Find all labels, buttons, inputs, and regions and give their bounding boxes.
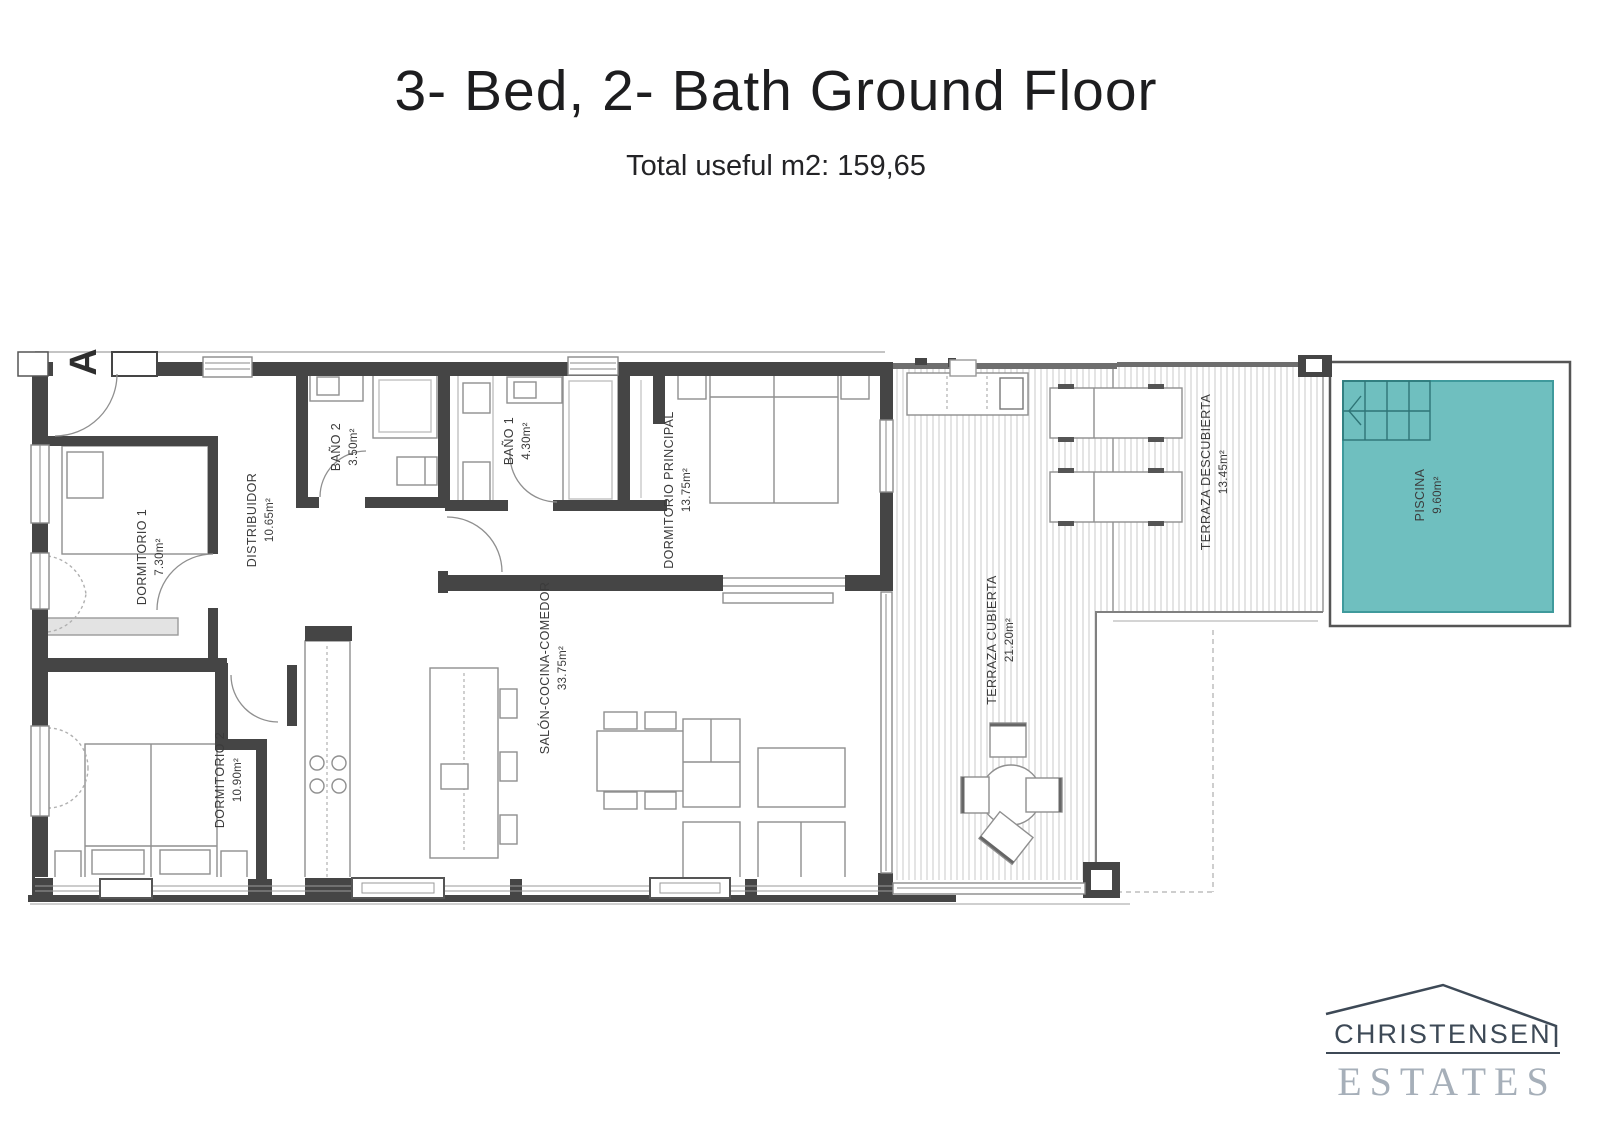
- room-label-distribuidor: DISTRIBUIDOR 10.65m²: [245, 473, 276, 567]
- svg-text:10.90m²: 10.90m²: [232, 758, 244, 802]
- svg-text:10.65m²: 10.65m²: [264, 498, 276, 542]
- logo-estates: ESTATES: [1337, 1059, 1556, 1104]
- svg-text:33.75m²: 33.75m²: [557, 646, 569, 690]
- room-label-salon: SALÓN-COCINA-COMEDOR 33.75m²: [537, 582, 569, 755]
- room-label-dormitorio-principal: DORMITORIO PRINCIPAL 13.75m²: [662, 411, 693, 569]
- room-label-bano-2: BAÑO 2 3.50m²: [329, 423, 360, 471]
- pool: [1330, 362, 1570, 626]
- svg-text:DISTRIBUIDOR: DISTRIBUIDOR: [245, 473, 259, 567]
- page: 3- Bed, 2- Bath Ground Floor Total usefu…: [0, 0, 1600, 1131]
- svg-text:TERRAZA DESCUBIERTA: TERRAZA DESCUBIERTA: [1199, 394, 1213, 551]
- sofa-set: [683, 719, 845, 879]
- svg-text:13.45m²: 13.45m²: [1218, 450, 1230, 494]
- kitchen-island: [430, 668, 517, 858]
- bano1-fixtures: [458, 375, 618, 505]
- dormitorio2-closet-doors: [48, 728, 88, 808]
- svg-text:4.30m²: 4.30m²: [521, 422, 533, 460]
- svg-text:BAÑO 1: BAÑO 1: [502, 417, 516, 465]
- svg-text:3.50m²: 3.50m²: [348, 428, 360, 466]
- terrace-decking: [893, 362, 1323, 892]
- principal-sliding-door: [723, 593, 833, 603]
- terrace-counter: [907, 373, 1028, 415]
- svg-text:SALÓN-COCINA-COMEDOR: SALÓN-COCINA-COMEDOR: [537, 582, 552, 755]
- dining-table-set: [597, 712, 684, 809]
- svg-text:7.30m²: 7.30m²: [154, 538, 166, 576]
- sun-lounger-1: [1050, 384, 1182, 442]
- svg-text:DORMITORIO 2: DORMITORIO 2: [213, 732, 227, 828]
- svg-text:13.75m²: 13.75m²: [681, 468, 693, 512]
- principal-bed: [678, 372, 869, 503]
- svg-text:A: A: [63, 348, 105, 375]
- floor-plan: A DORMITORIO 1 7.30m² DISTRIBUIDOR 10.65…: [0, 0, 1600, 1131]
- section-marker-a: A: [63, 348, 105, 375]
- svg-text:PISCINA: PISCINA: [1413, 468, 1427, 521]
- svg-text:TERRAZA CUBIERTA: TERRAZA CUBIERTA: [985, 575, 999, 705]
- kitchen-counter: [305, 641, 350, 881]
- room-label-bano-1: BAÑO 1 4.30m²: [502, 417, 533, 465]
- svg-text:BAÑO 2: BAÑO 2: [329, 423, 343, 471]
- svg-text:9.60m²: 9.60m²: [1432, 476, 1444, 514]
- sun-lounger-2: [1050, 468, 1182, 526]
- svg-text:DORMITORIO 1: DORMITORIO 1: [135, 509, 149, 605]
- svg-text:21.20m²: 21.20m²: [1004, 618, 1016, 662]
- brand-logo: CHRISTENSEN ESTATES: [1313, 963, 1573, 1113]
- svg-text:DORMITORIO PRINCIPAL: DORMITORIO PRINCIPAL: [662, 411, 676, 569]
- logo-name: CHRISTENSEN: [1334, 1019, 1552, 1049]
- dormitorio1-wardrobe: [43, 618, 178, 635]
